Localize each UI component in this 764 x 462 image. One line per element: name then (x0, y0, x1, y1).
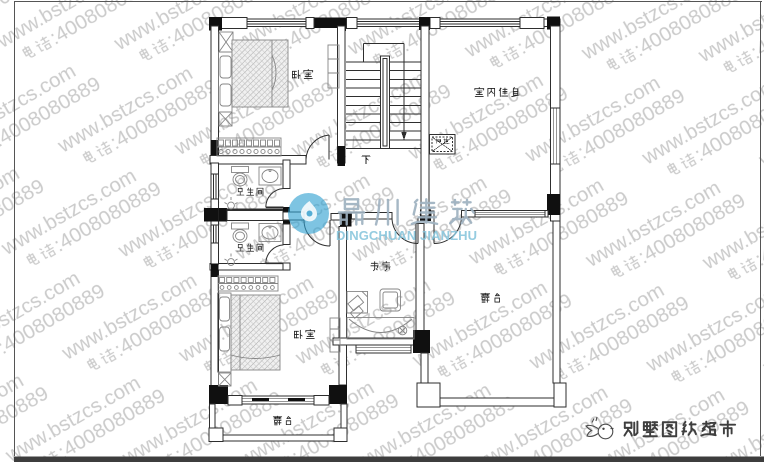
svg-text:DINGCHUAN JIANZHU: DINGCHUAN JIANZHU (336, 228, 477, 243)
